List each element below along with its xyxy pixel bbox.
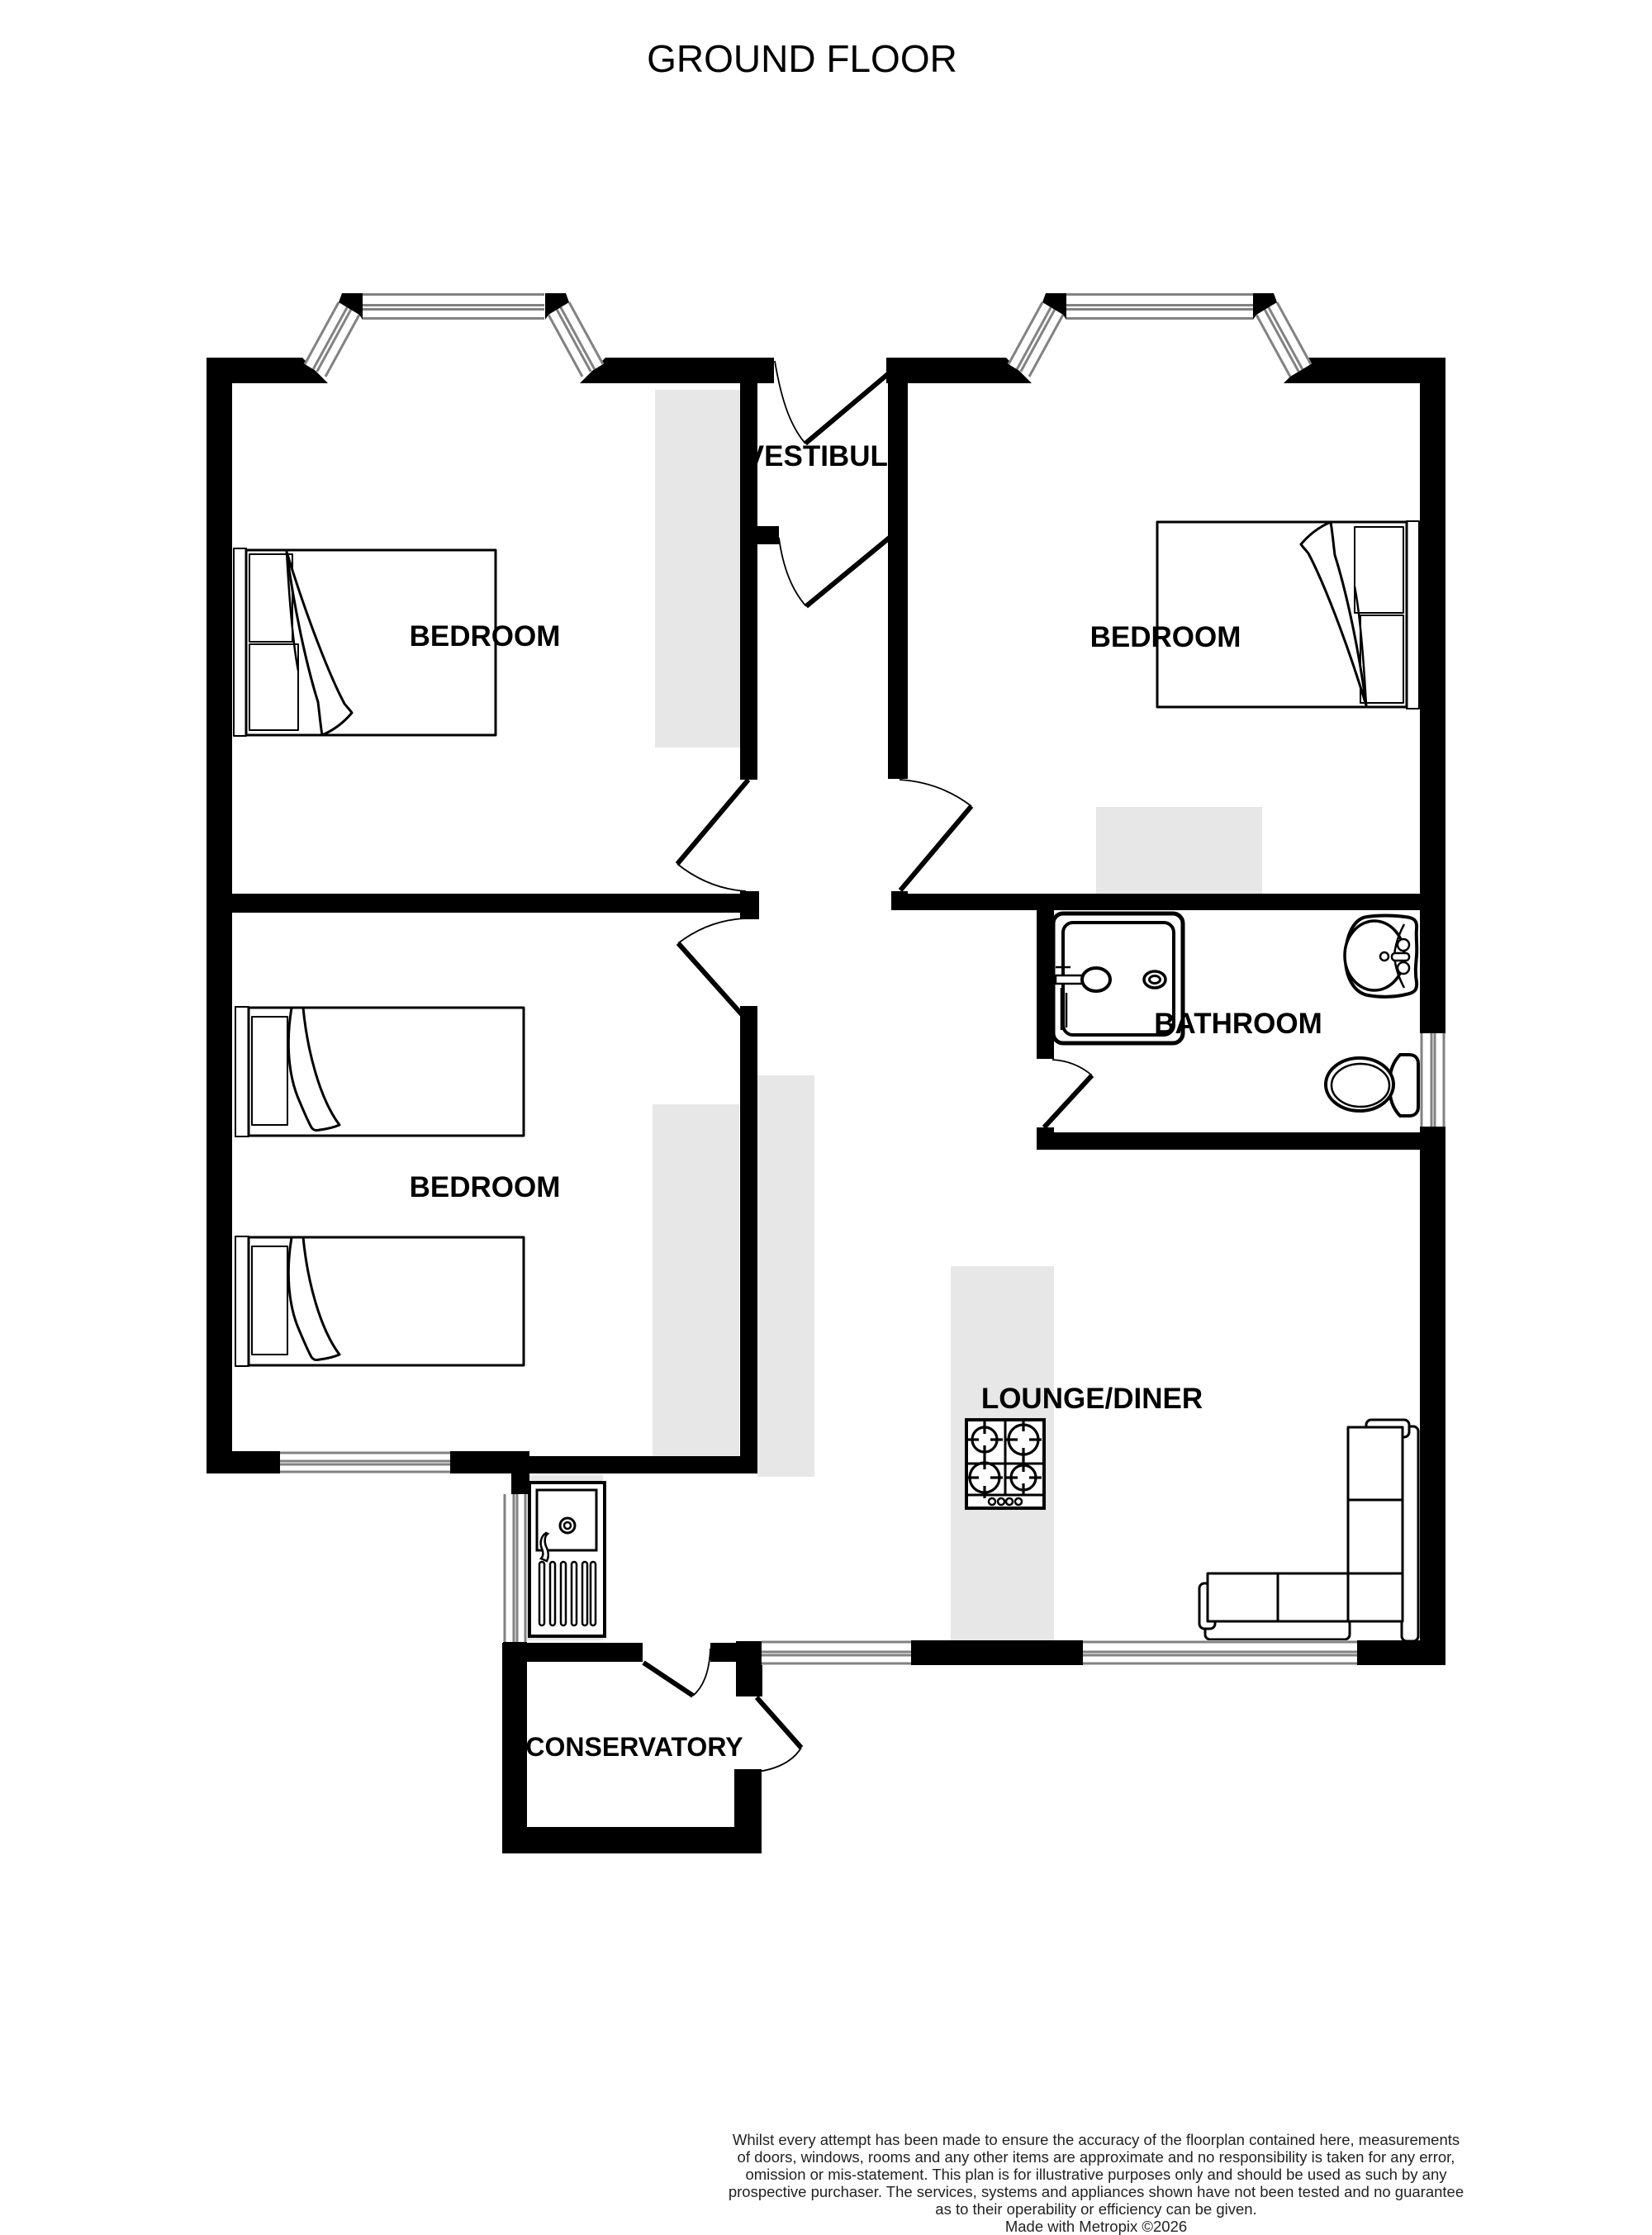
svg-text:omission or mis-statement. Thi: omission or mis-statement. This plan is … bbox=[745, 2166, 1447, 2183]
svg-text:as to their operability or eff: as to their operability or efficiency ca… bbox=[935, 2200, 1256, 2218]
svg-text:VESTIBULE: VESTIBULE bbox=[745, 440, 907, 472]
svg-text:GROUND FLOOR: GROUND FLOOR bbox=[647, 37, 957, 80]
svg-text:BEDROOM: BEDROOM bbox=[1090, 621, 1241, 653]
svg-text:Whilst every attempt has been: Whilst every attempt has been made to en… bbox=[733, 2131, 1460, 2148]
svg-text:BATHROOM: BATHROOM bbox=[1154, 1008, 1322, 1040]
svg-text:BEDROOM: BEDROOM bbox=[410, 620, 561, 652]
svg-text:Made with Metropix ©2026: Made with Metropix ©2026 bbox=[1005, 2218, 1187, 2235]
svg-text:BEDROOM: BEDROOM bbox=[410, 1171, 561, 1203]
svg-text:prospective purchaser. The ser: prospective purchaser. The services, sys… bbox=[729, 2183, 1464, 2200]
svg-text:CONSERVATORY: CONSERVATORY bbox=[525, 1732, 743, 1762]
svg-text:LOUNGE/DINER: LOUNGE/DINER bbox=[981, 1383, 1203, 1415]
svg-text:of doors, windows, rooms and a: of doors, windows, rooms and any other i… bbox=[738, 2148, 1455, 2166]
